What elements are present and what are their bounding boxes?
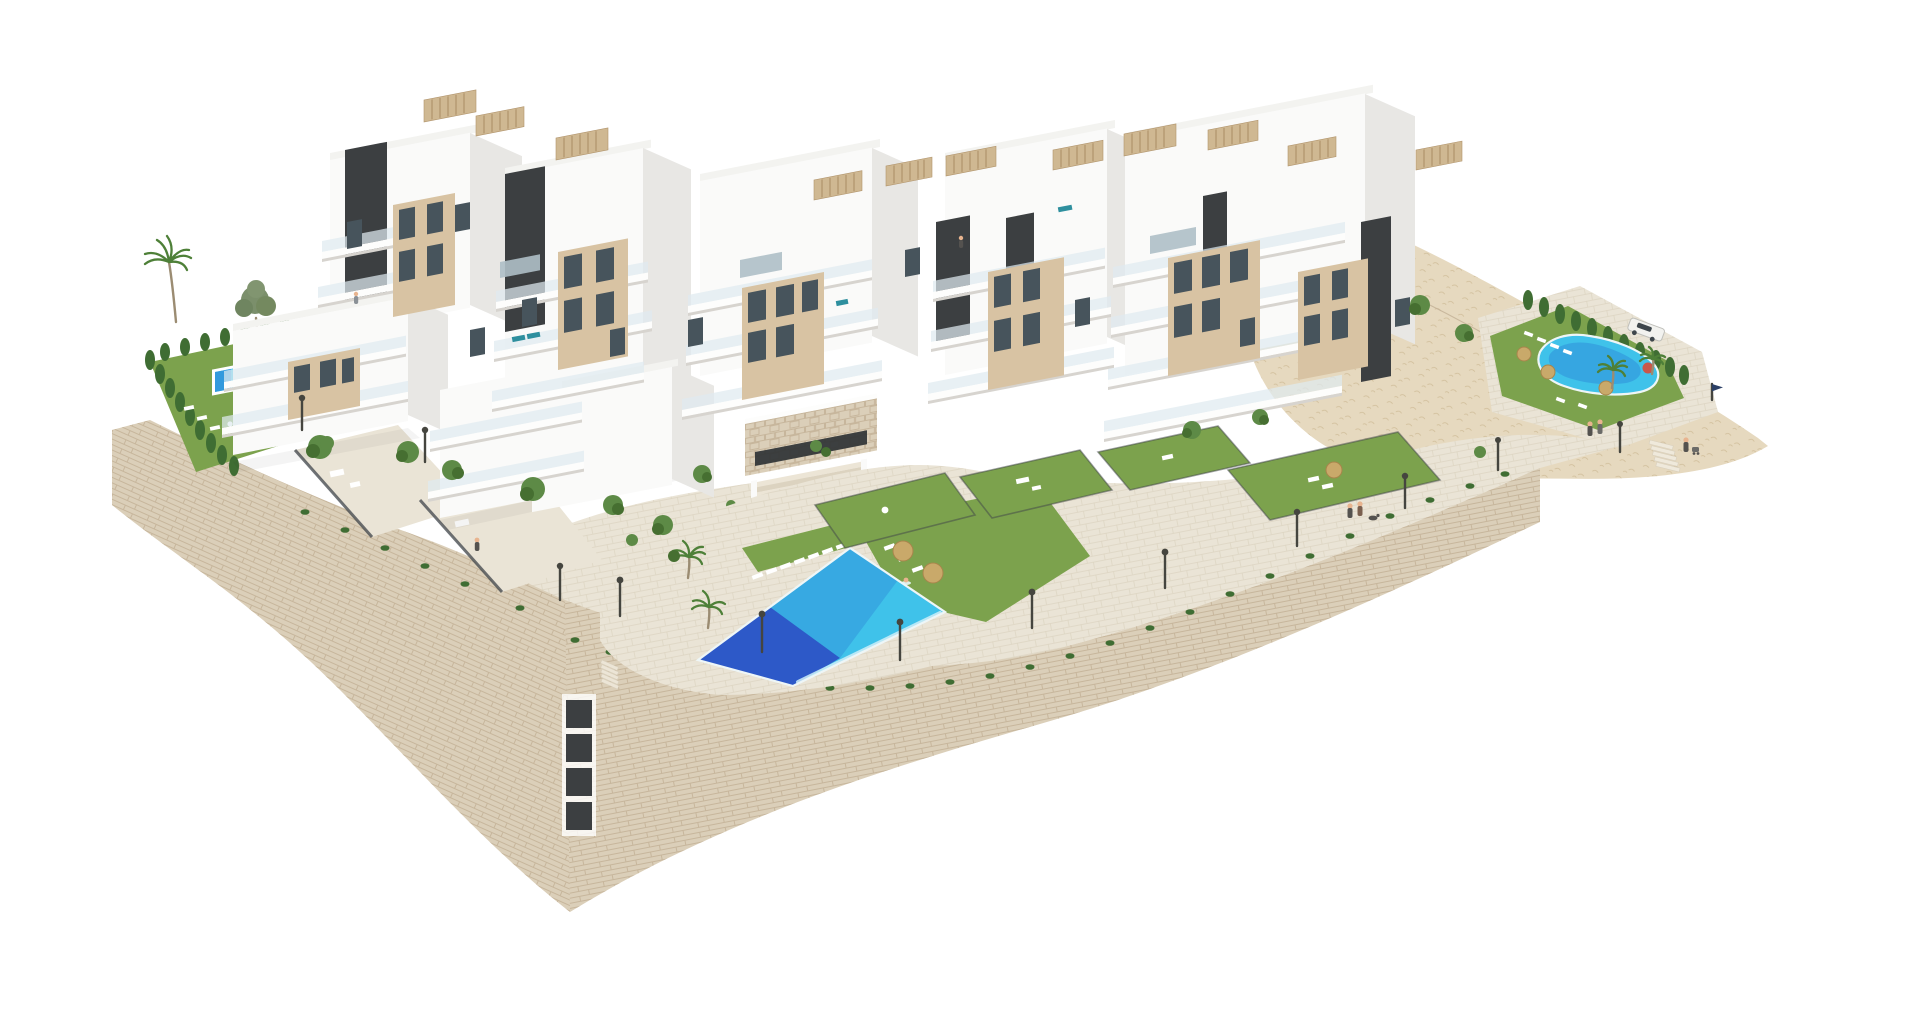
architectural-render-canvas: Aerial 3D rendering of a modern hillside… [0, 0, 1920, 1024]
person-on-promenade [475, 538, 480, 551]
person-on-terrace [354, 292, 358, 304]
apartment-complex-render: Aerial 3D rendering of a modern hillside… [0, 0, 1920, 1024]
person-on-roof [959, 236, 963, 248]
garden-parasol [1326, 462, 1342, 478]
wall-service-slots [562, 694, 596, 836]
